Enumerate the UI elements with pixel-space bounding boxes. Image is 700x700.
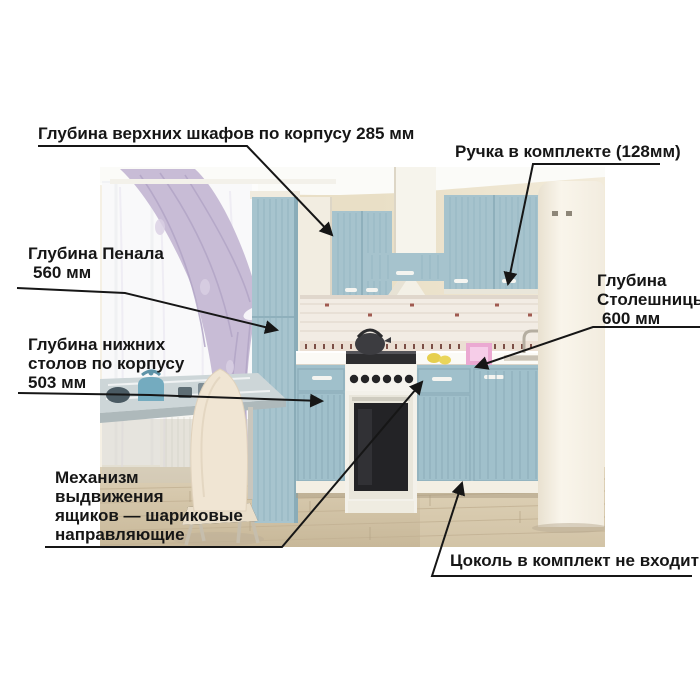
label-line: выдвижения [55,487,243,506]
curtain-rod [110,179,336,184]
label-drawer-mechanism: Механизм выдвижения ящиков — шариковые н… [55,468,243,544]
label-line: Глубина нижних [28,335,184,354]
label-line: столов по корпусу [28,354,184,373]
label-countertop-depth: Глубина Столешницы 600 мм [597,271,700,328]
label-plinth-note: Цоколь в комплект не входит [450,551,699,570]
label-line: Механизм [55,468,243,487]
plinth [296,481,548,493]
oven-door [349,395,413,499]
hood-duct [394,167,436,255]
drawer-handle [312,376,332,380]
cabinet-handle [396,271,414,275]
pink-box [466,343,492,365]
door-handle [484,375,504,379]
label-line: Глубина Пенала [28,244,164,263]
cabinet-handle [454,279,468,283]
label-line: Столешницы [597,290,700,309]
cabinet-handle [366,288,378,292]
base-cabinets [296,365,548,498]
label-line: ящиков — шариковые [55,506,243,525]
fridge [532,181,605,533]
label-line: направляющие [55,525,243,544]
label-tall-cabinet-depth: Глубина Пенала 560 мм [28,244,164,282]
cabinet-handle [502,279,516,283]
label-line: 560 мм [28,263,164,282]
drawer-handle [432,377,452,381]
label-handle-included: Ручка в комплекте (128мм) [455,142,681,161]
gas-stove [345,330,417,513]
label-upper-cabinets-depth: Глубина верхних шкафов по корпусу 285 мм [38,124,414,143]
hood-cabinet [366,253,444,281]
label-line: 503 мм [28,373,184,392]
label-base-cabinets-depth: Глубина нижних столов по корпусу 503 мм [28,335,184,392]
label-line: 600 мм [597,309,700,328]
cabinet-handle [345,288,357,292]
backsplash [300,295,548,359]
label-line: Глубина [597,271,700,290]
annotated-kitchen-diagram: Глубина верхних шкафов по корпусу 285 мм… [0,0,700,700]
tall-cabinet [250,191,300,523]
wall-cabinets-right [444,195,544,294]
